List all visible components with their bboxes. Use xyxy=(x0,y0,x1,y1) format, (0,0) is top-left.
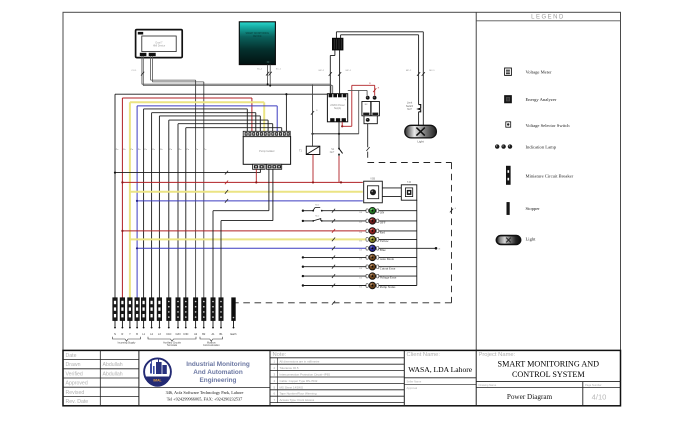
svg-text:Abdullah: Abdullah xyxy=(103,371,123,377)
svg-text:And Automation: And Automation xyxy=(193,369,243,376)
svg-text:No?: No? xyxy=(330,151,335,154)
svg-text:LEGEND: LEGEND xyxy=(531,15,565,21)
svg-text:Client Name:: Client Name: xyxy=(407,352,441,358)
svg-text:Communication: Communication xyxy=(203,344,220,347)
svg-text:MC-2: MC-2 xyxy=(406,70,412,72)
svg-text:Light: Light xyxy=(417,140,424,144)
svg-text:SMART MONITORING: SMART MONITORING xyxy=(246,32,270,35)
svg-text:Revised: Revised xyxy=(66,390,85,396)
svg-text:Cable: Copper Type RS-7032: Cable: Copper Type RS-7032 xyxy=(280,379,318,383)
svg-text:Rev. Date: Rev. Date xyxy=(66,399,89,405)
svg-text:Industrial Monitoring: Industrial Monitoring xyxy=(186,361,250,368)
svg-text:24VDC Power: 24VDC Power xyxy=(330,104,345,107)
svg-text:N: N xyxy=(114,333,116,336)
svg-text:Abdullah: Abdullah xyxy=(103,362,123,368)
svg-text:4/10: 4/10 xyxy=(592,392,607,401)
svg-text:Miniature Circuit Breaker: Miniature Circuit Breaker xyxy=(526,173,574,178)
svg-text:Page Number: Page Number xyxy=(585,383,602,387)
svg-text:Tolerance ±0.5: Tolerance ±0.5 xyxy=(280,366,299,370)
svg-text:Power Diagram: Power Diagram xyxy=(507,393,553,401)
svg-text:Energy Analyzer: Energy Analyzer xyxy=(526,97,557,102)
svg-text:C2N: C2N xyxy=(175,333,180,336)
svg-text:Drawing Name: Drawing Name xyxy=(479,383,497,387)
svg-text:Indication Lamp: Indication Lamp xyxy=(526,145,557,150)
svg-text:Earth: Earth xyxy=(231,333,238,336)
svg-text:SMART MONITORING AND: SMART MONITORING AND xyxy=(498,359,600,368)
svg-text:C1N: C1N xyxy=(166,333,171,336)
svg-text:CONTROL SYSTEM: CONTROL SYSTEM xyxy=(512,370,585,379)
svg-text:Supply: Supply xyxy=(334,108,342,110)
svg-text:MC-2: MC-2 xyxy=(319,70,325,72)
svg-text:C3N: C3N xyxy=(183,333,188,336)
svg-text:MC-1: MC-1 xyxy=(429,70,435,72)
svg-text:WASA, LDA Lahore: WASA, LDA Lahore xyxy=(408,365,473,374)
svg-text:VSB: VSB xyxy=(370,178,375,181)
svg-text:Seller Name: Seller Name xyxy=(407,380,422,384)
svg-text:IMAL: IMAL xyxy=(153,379,161,383)
svg-text:Light: Light xyxy=(526,237,537,242)
svg-text:Tape Number/Floor Wirening: Tape Number/Floor Wirening xyxy=(280,392,317,396)
svg-text:Note:: Note: xyxy=(273,352,287,358)
svg-text:Date: Date xyxy=(66,353,77,359)
svg-text:Voltage Selector Switch: Voltage Selector Switch xyxy=(526,123,571,128)
svg-text:Pump Isolator: Pump Isolator xyxy=(259,150,275,153)
svg-text:T-M: T-M xyxy=(407,181,411,184)
svg-text:All dimensions are in millimet: All dimensions are in millimetre xyxy=(280,360,320,364)
svg-text:MS Sheet 14SWG: MS Sheet 14SWG xyxy=(280,385,304,389)
svg-text:Access Type: Front Access: Access Type: Front Access xyxy=(280,398,315,402)
svg-text:Voltage Meter: Voltage Meter xyxy=(526,70,553,75)
svg-text:No?: No? xyxy=(407,108,412,111)
svg-text:HMI Device: HMI Device xyxy=(153,45,166,48)
svg-text:Stopper: Stopper xyxy=(526,206,541,211)
svg-text:xx: xx xyxy=(267,62,269,64)
svg-text:Engineering: Engineering xyxy=(200,377,237,384)
svg-text:Terminals: Terminals xyxy=(167,344,178,347)
svg-text:Approved: Approved xyxy=(66,381,88,387)
svg-text:R: R xyxy=(121,333,123,336)
svg-text:Project Name:: Project Name: xyxy=(479,352,516,358)
svg-text:Drawn: Drawn xyxy=(66,362,81,368)
svg-text:Incoming Supply: Incoming Supply xyxy=(118,341,136,344)
svg-text:SC-2: SC-2 xyxy=(257,69,263,71)
svg-text:DEVICE: DEVICE xyxy=(253,36,262,38)
svg-text:Approval: Approval xyxy=(407,386,418,390)
svg-text:Interconnection Protection Cir: Interconnection Protection Circuit--IP65 xyxy=(280,373,331,377)
svg-text:Verified: Verified xyxy=(66,371,83,377)
svg-text:CC-1: CC-1 xyxy=(131,70,137,72)
svg-text:MC-1: MC-1 xyxy=(346,70,352,72)
svg-text:SC-1: SC-1 xyxy=(276,69,282,71)
